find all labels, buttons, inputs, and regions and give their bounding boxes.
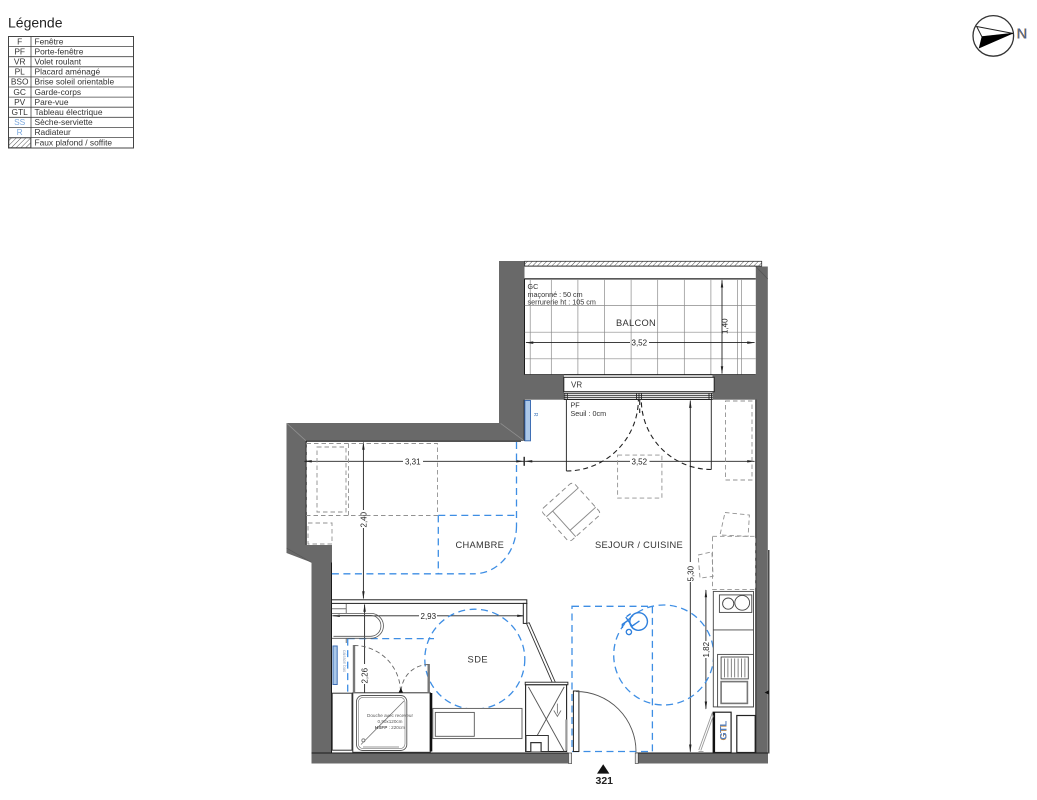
svg-text:PL: PL	[15, 67, 26, 77]
svg-text:Douche avec receveur: Douche avec receveur	[367, 713, 413, 718]
svg-text:Porte-fenêtre: Porte-fenêtre	[35, 46, 84, 56]
svg-text:3,52: 3,52	[632, 457, 648, 466]
svg-text:BSO: BSO	[11, 77, 29, 87]
svg-text:Radiateur: Radiateur	[35, 127, 72, 137]
svg-text:Tableau électrique: Tableau électrique	[35, 107, 103, 117]
svg-text:Sèche-serviette: Sèche-serviette	[35, 117, 94, 127]
svg-text:caisson bas: caisson bas	[342, 650, 347, 672]
svg-text:serrurerie ht : 105 cm: serrurerie ht : 105 cm	[528, 298, 596, 307]
svg-text:321: 321	[596, 775, 614, 787]
svg-text:Légende: Légende	[8, 15, 63, 31]
svg-text:SEJOUR / CUISINE: SEJOUR / CUISINE	[595, 540, 683, 550]
svg-text:BALCON: BALCON	[616, 318, 656, 328]
svg-text:Garde-corps: Garde-corps	[35, 87, 82, 97]
svg-text:GTL: GTL	[718, 721, 729, 740]
svg-text:CHAMBRE: CHAMBRE	[456, 540, 505, 550]
svg-text:N: N	[1017, 26, 1027, 42]
svg-text:2,40: 2,40	[360, 511, 369, 527]
svg-text:R: R	[532, 413, 538, 417]
svg-text:SS: SS	[14, 117, 26, 127]
svg-text:2,26: 2,26	[361, 667, 370, 683]
svg-text:Brise soleil orientable: Brise soleil orientable	[35, 77, 115, 87]
svg-text:VR: VR	[14, 57, 26, 67]
svg-text:HSFP : 220cm: HSFP : 220cm	[375, 725, 405, 730]
svg-text:3,31: 3,31	[405, 457, 421, 466]
svg-text:PV: PV	[14, 97, 26, 107]
svg-text:Fenêtre: Fenêtre	[35, 36, 64, 46]
svg-text:3,52: 3,52	[632, 339, 648, 348]
svg-text:1,82: 1,82	[702, 641, 711, 657]
svg-text:GTL: GTL	[12, 107, 29, 117]
svg-text:2,93: 2,93	[421, 612, 437, 621]
svg-text:GC: GC	[13, 87, 26, 97]
svg-text:F: F	[17, 36, 22, 46]
svg-text:VR: VR	[571, 381, 582, 390]
svg-text:1,40: 1,40	[721, 318, 730, 334]
svg-text:Placard aménagé: Placard aménagé	[35, 67, 101, 77]
svg-text:PF: PF	[14, 46, 25, 56]
svg-text:5,30: 5,30	[686, 565, 695, 581]
svg-text:Pare-vue: Pare-vue	[35, 97, 69, 107]
svg-text:Faux plafond / soffite: Faux plafond / soffite	[35, 137, 113, 147]
svg-text:Volet roulant: Volet roulant	[35, 57, 82, 67]
svg-text:0,90x120cm: 0,90x120cm	[377, 719, 402, 724]
svg-text:R: R	[17, 127, 23, 137]
svg-text:SDE: SDE	[468, 655, 489, 665]
svg-text:Seuil : 0cm: Seuil : 0cm	[571, 409, 607, 418]
